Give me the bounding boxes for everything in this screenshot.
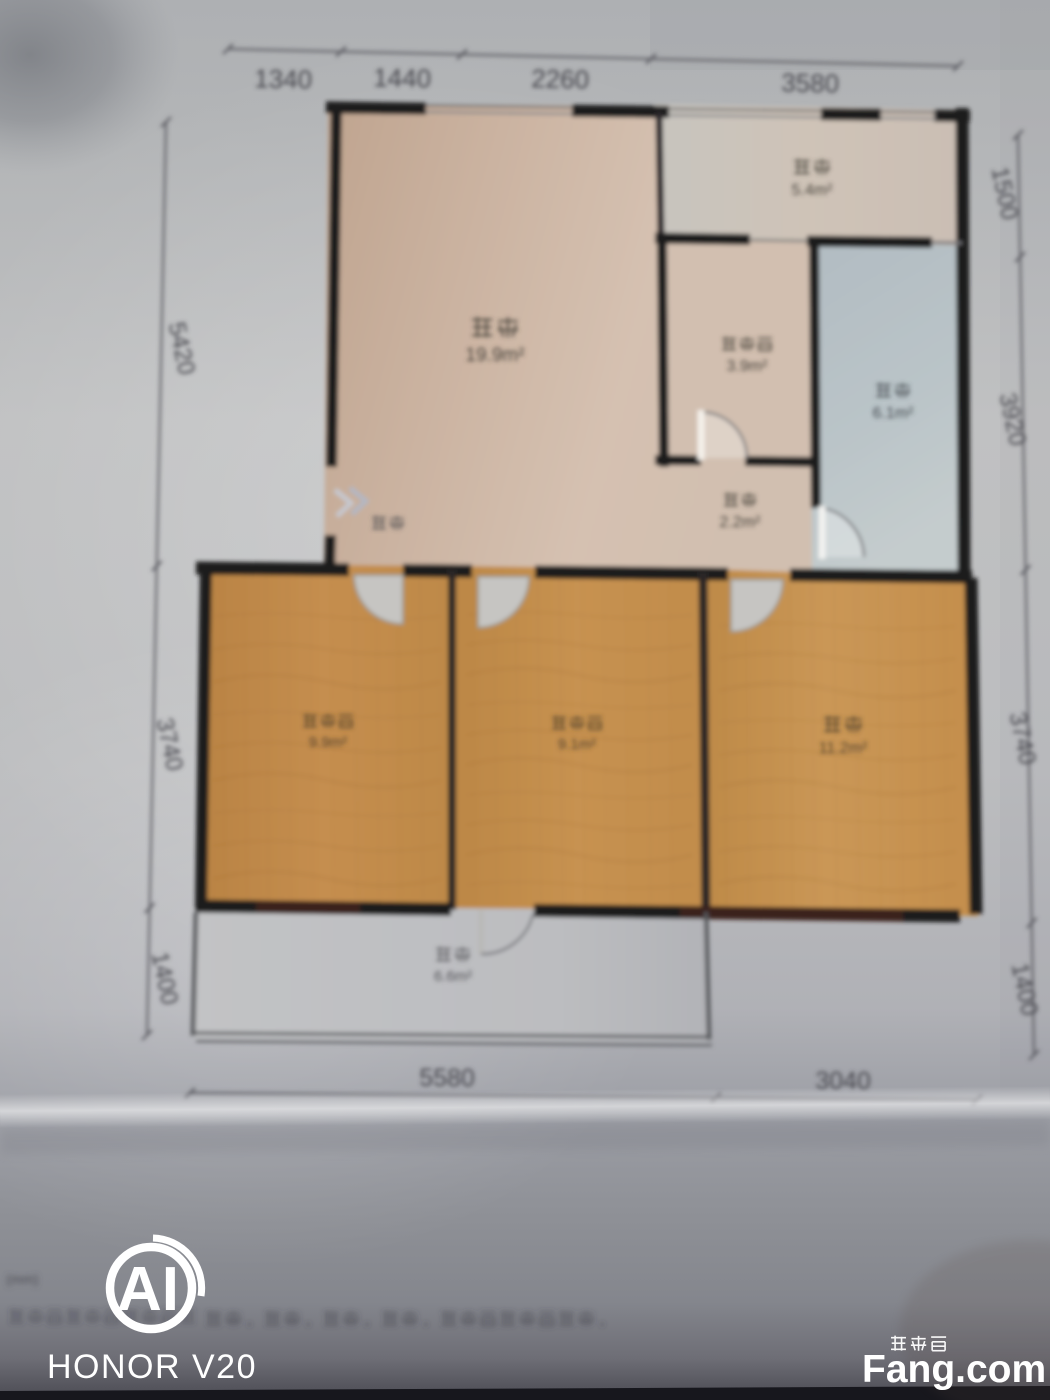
svg-text:19.9m²: 19.9m²: [465, 345, 524, 366]
svg-text:3580: 3580: [781, 67, 839, 98]
svg-text:1440: 1440: [373, 62, 431, 93]
svg-text:9.1m²: 9.1m²: [558, 736, 596, 753]
svg-text:3.9m²: 3.9m²: [727, 358, 769, 375]
svg-text:2.2m²: 2.2m²: [720, 514, 762, 531]
svg-text:HONOR V20: HONOR V20: [47, 1348, 257, 1386]
svg-text:5.4m²: 5.4m²: [792, 182, 834, 199]
svg-text:1340: 1340: [254, 63, 312, 94]
svg-text:Fang.com: Fang.com: [862, 1348, 1046, 1391]
svg-text:6.1m²: 6.1m²: [873, 405, 915, 422]
svg-text:2260: 2260: [531, 63, 589, 94]
svg-text:11.2m²: 11.2m²: [819, 740, 868, 757]
svg-text:5580: 5580: [419, 1064, 475, 1093]
svg-text:(mm): (mm): [6, 1271, 39, 1287]
svg-text:9.9m²: 9.9m²: [309, 734, 347, 751]
svg-text:6.6m²: 6.6m²: [434, 968, 472, 985]
svg-text:AI: AI: [117, 1255, 179, 1324]
